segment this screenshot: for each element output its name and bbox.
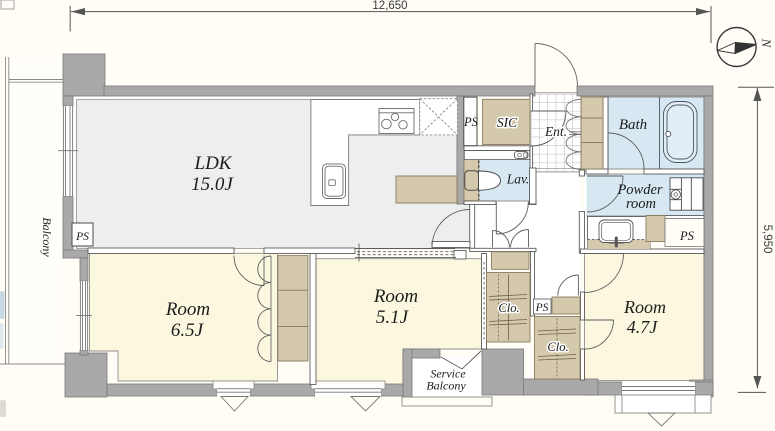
svg-text:PS: PS bbox=[75, 231, 89, 243]
svg-text:Bath: Bath bbox=[619, 117, 647, 133]
svg-text:Balcony: Balcony bbox=[426, 379, 466, 393]
svg-text:Room: Room bbox=[623, 297, 666, 317]
svg-text:Ent.: Ent. bbox=[544, 124, 567, 139]
svg-text:PS: PS bbox=[463, 115, 479, 129]
svg-text:5.1J: 5.1J bbox=[376, 307, 410, 328]
svg-text:12,650: 12,650 bbox=[372, 0, 407, 12]
svg-text:PS: PS bbox=[535, 302, 549, 314]
svg-text:Room: Room bbox=[373, 286, 418, 307]
svg-text:Room: Room bbox=[165, 299, 210, 320]
svg-text:15.0J: 15.0J bbox=[191, 174, 234, 195]
svg-text:PS: PS bbox=[679, 229, 695, 243]
svg-text:N: N bbox=[759, 38, 774, 49]
svg-text:4.7J: 4.7J bbox=[627, 317, 659, 337]
svg-text:Clo.: Clo. bbox=[547, 340, 568, 354]
svg-text:Lav.: Lav. bbox=[506, 172, 530, 187]
svg-text:room: room bbox=[626, 196, 656, 212]
svg-text:Balcony: Balcony bbox=[40, 217, 54, 257]
svg-text:SIC: SIC bbox=[497, 115, 518, 130]
svg-text:5,950: 5,950 bbox=[761, 225, 773, 254]
svg-text:Clo.: Clo. bbox=[498, 301, 519, 315]
svg-text:LDK: LDK bbox=[194, 153, 233, 174]
svg-text:6.5J: 6.5J bbox=[171, 320, 205, 341]
